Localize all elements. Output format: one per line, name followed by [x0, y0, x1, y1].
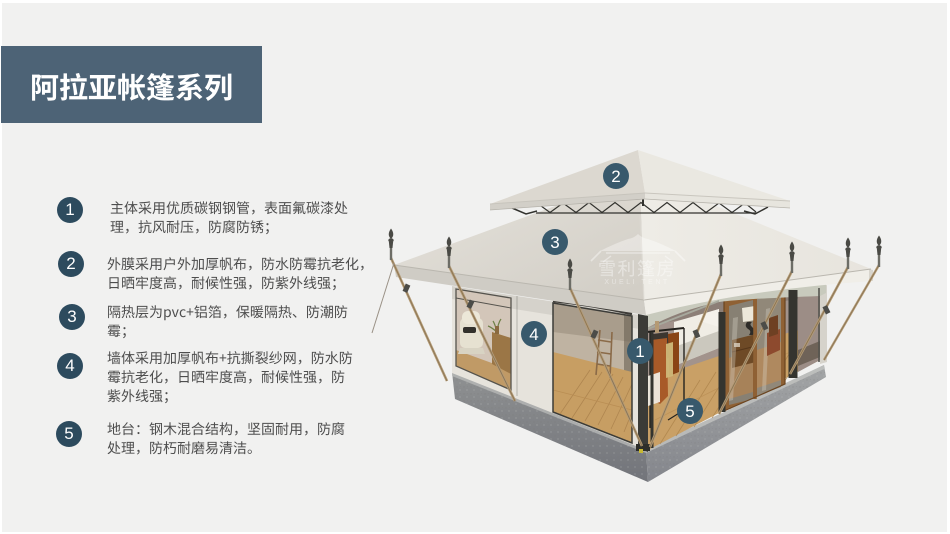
svg-text:5: 5	[685, 402, 694, 421]
svg-text:2: 2	[611, 167, 620, 186]
svg-text:雪利篷房: 雪利篷房	[598, 255, 676, 281]
svg-text:4: 4	[529, 325, 538, 344]
svg-text:XUELI TENT: XUELI TENT	[604, 279, 669, 286]
svg-text:1: 1	[635, 342, 644, 361]
svg-text:3: 3	[550, 233, 559, 252]
